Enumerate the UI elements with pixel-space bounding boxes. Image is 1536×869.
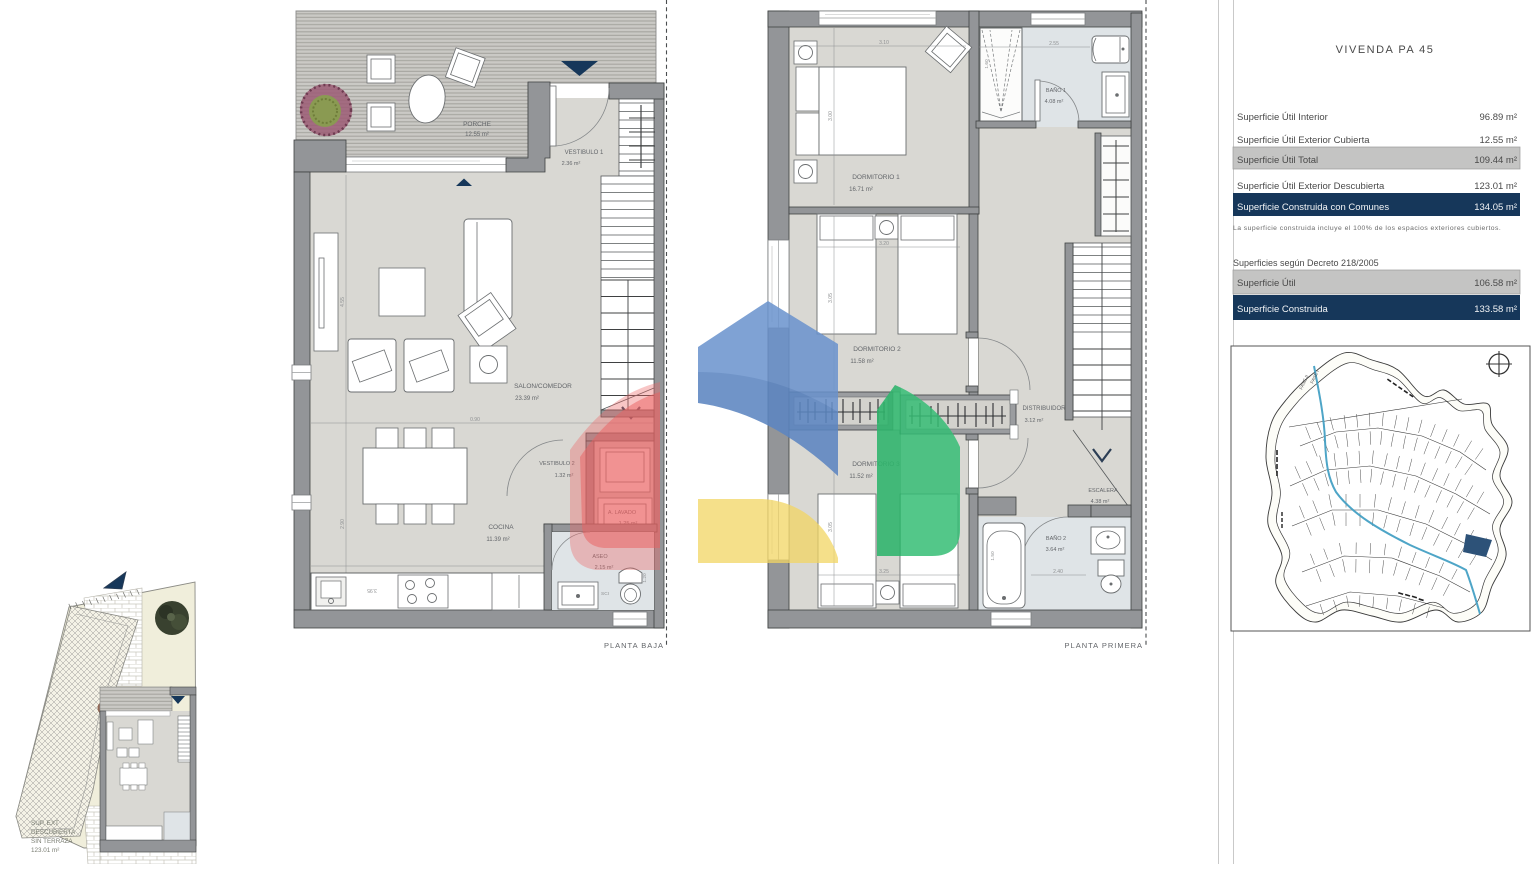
svg-text:4.55: 4.55: [340, 297, 346, 307]
svg-text:Superficies según Decreto 218/: Superficies según Decreto 218/2005: [1233, 258, 1379, 268]
svg-text:1.60: 1.60: [984, 59, 990, 69]
svg-text:1.20: 1.20: [642, 573, 648, 583]
svg-text:3.05: 3.05: [828, 522, 834, 532]
svg-text:2.36 m²: 2.36 m²: [562, 161, 581, 167]
svg-text:DORMITORIO 2: DORMITORIO 2: [853, 346, 901, 353]
svg-text:SALON/COMEDOR: SALON/COMEDOR: [514, 383, 572, 390]
svg-text:133.58 m²: 133.58 m²: [1474, 304, 1517, 315]
svg-text:PORCHE: PORCHE: [463, 121, 491, 128]
svg-text:Superficie Útil Exterior Cubie: Superficie Útil Exterior Cubierta: [1237, 135, 1370, 146]
svg-text:COCINA: COCINA: [488, 524, 514, 531]
svg-text:PLANTA PRIMERA: PLANTA PRIMERA: [1065, 641, 1143, 650]
svg-text:DESCUBIERTA: DESCUBIERTA: [31, 829, 76, 836]
svg-text:96.89 m²: 96.89 m²: [1480, 112, 1518, 123]
svg-text:3.95: 3.95: [367, 587, 377, 593]
svg-text:Superficie Útil Exterior Descu: Superficie Útil Exterior Descubierta: [1237, 181, 1385, 192]
svg-text:123.01 m²: 123.01 m²: [31, 847, 59, 854]
svg-text:11.52 m²: 11.52 m²: [849, 474, 872, 480]
svg-text:2.55: 2.55: [1049, 41, 1059, 47]
svg-text:16.71 m²: 16.71 m²: [849, 187, 873, 193]
svg-text:DORMITORIO 1: DORMITORIO 1: [852, 174, 900, 181]
svg-text:DISTRIBUIDOR: DISTRIBUIDOR: [1022, 406, 1066, 412]
svg-text:3.05: 3.05: [828, 293, 834, 303]
svg-text:1.50: 1.50: [990, 551, 996, 561]
svg-text:3.12 m²: 3.12 m²: [1025, 418, 1044, 424]
svg-text:3.25: 3.25: [879, 569, 889, 575]
svg-text:4.08 m²: 4.08 m²: [1045, 99, 1064, 105]
svg-text:BAÑO 2: BAÑO 2: [1046, 535, 1066, 542]
svg-text:106.58 m²: 106.58 m²: [1474, 278, 1517, 289]
svg-text:4.38 m²: 4.38 m²: [1091, 499, 1110, 505]
svg-text:VESTIBULO 2: VESTIBULO 2: [539, 461, 574, 467]
svg-text:SUP. EXT: SUP. EXT: [31, 820, 59, 827]
svg-text:SIN TERRAZA: SIN TERRAZA: [31, 838, 73, 845]
svg-text:3.64 m²: 3.64 m²: [1046, 547, 1065, 553]
svg-text:SCI: SCI: [601, 591, 609, 597]
svg-text:0.90: 0.90: [470, 417, 480, 423]
svg-text:ESCALERA: ESCALERA: [1088, 488, 1118, 494]
svg-text:11.39 m²: 11.39 m²: [486, 537, 509, 543]
svg-text:3.00: 3.00: [828, 111, 834, 121]
svg-text:23.39 m²: 23.39 m²: [515, 396, 539, 402]
svg-text:Superficie Útil: Superficie Útil: [1237, 278, 1296, 289]
svg-text:12.55 m²: 12.55 m²: [1480, 135, 1518, 146]
svg-text:109.44 m²: 109.44 m²: [1474, 155, 1517, 166]
svg-text:Superficie Construida: Superficie Construida: [1237, 304, 1329, 315]
svg-text:134.05 m²: 134.05 m²: [1474, 202, 1517, 213]
svg-text:11.58 m²: 11.58 m²: [850, 359, 873, 365]
svg-text:123.01 m²: 123.01 m²: [1474, 181, 1517, 192]
svg-text:2.90: 2.90: [340, 519, 346, 529]
svg-text:La superficie construida inclu: La superficie construida incluye el 100%…: [1233, 225, 1501, 232]
svg-text:Superficie Construida con Comu: Superficie Construida con Comunes: [1237, 202, 1389, 213]
svg-text:Superficie Útil Total: Superficie Útil Total: [1237, 155, 1318, 166]
svg-text:3.10: 3.10: [879, 40, 889, 46]
svg-text:VESTIBULO 1: VESTIBULO 1: [565, 150, 604, 156]
svg-text:12.55 m²: 12.55 m²: [465, 132, 489, 138]
svg-text:VIVENDA PA 45: VIVENDA PA 45: [1336, 44, 1435, 56]
svg-text:BAÑO 1: BAÑO 1: [1046, 87, 1066, 94]
svg-text:Superficie Útil Interior: Superficie Útil Interior: [1237, 112, 1328, 123]
svg-text:3.20: 3.20: [879, 241, 889, 247]
svg-text:2.40: 2.40: [1053, 569, 1063, 575]
svg-text:PLANTA BAJA: PLANTA BAJA: [604, 641, 664, 650]
